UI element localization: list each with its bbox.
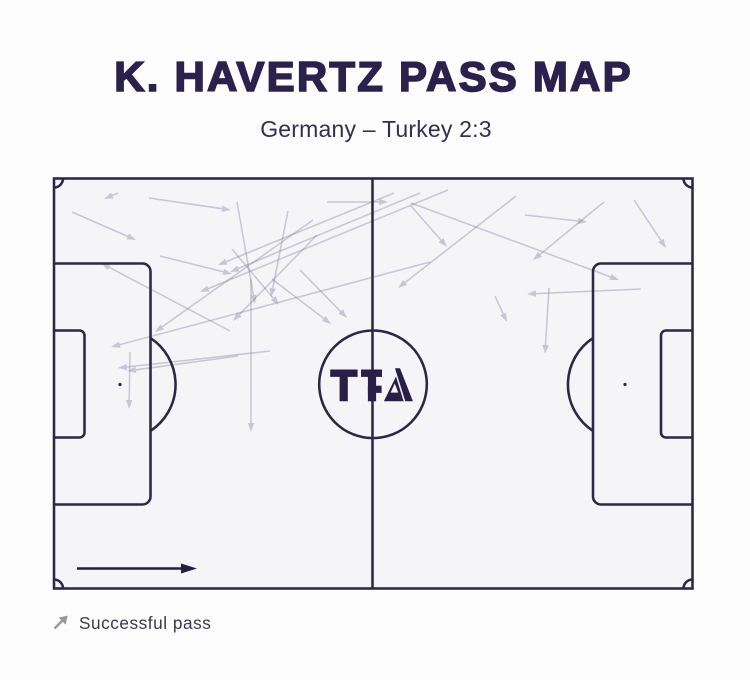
svg-text:Successful pass: Successful pass bbox=[79, 613, 211, 633]
